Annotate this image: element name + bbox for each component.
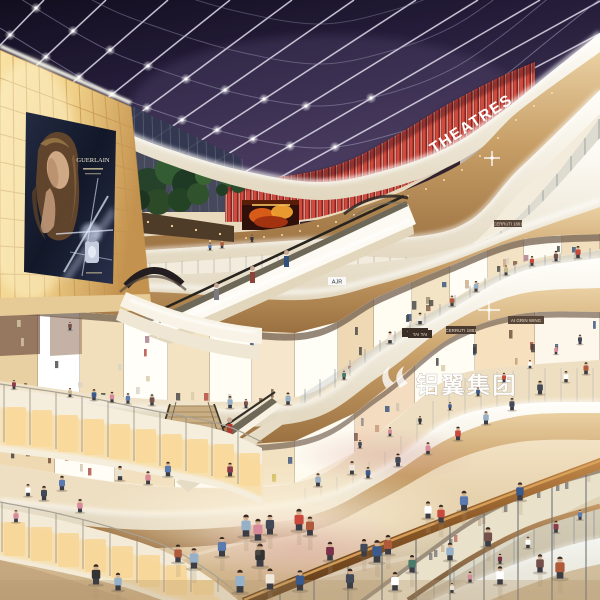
- svg-text:TAI TAI: TAI TAI: [413, 332, 428, 337]
- svg-text:CERRUTI 1881: CERRUTI 1881: [493, 222, 523, 227]
- svg-text:AI GRIN WING: AI GRIN WING: [511, 318, 542, 323]
- svg-text:AJR: AJR: [332, 280, 342, 286]
- svg-text:GUERLAIN: GUERLAIN: [76, 157, 110, 164]
- svg-text:CERRUTI 1881: CERRUTI 1881: [445, 328, 477, 333]
